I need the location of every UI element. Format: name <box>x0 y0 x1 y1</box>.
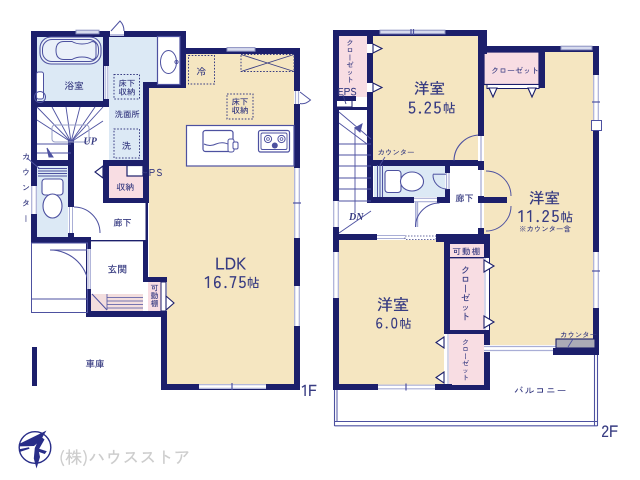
svg-text:UP: UP <box>84 137 98 148</box>
svg-text:DN: DN <box>348 212 364 223</box>
